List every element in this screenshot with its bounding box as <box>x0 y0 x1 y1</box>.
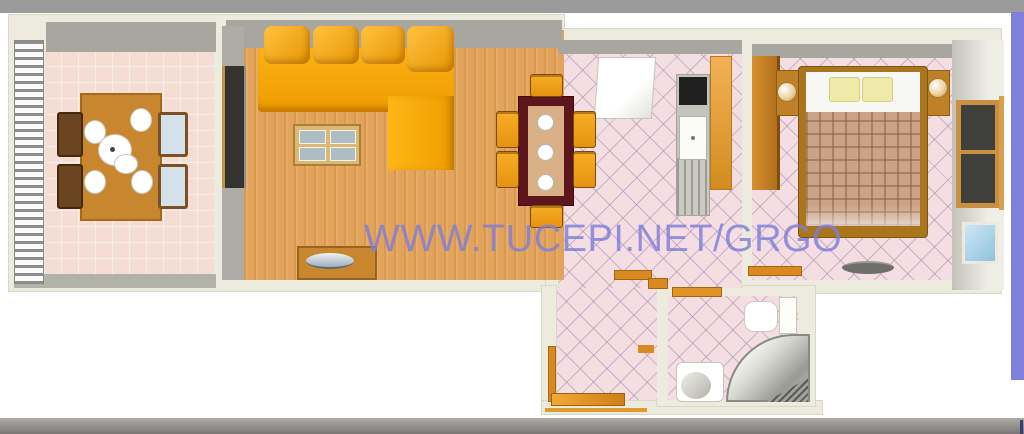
terrace-top-wall-face <box>46 22 216 52</box>
bedroom-window <box>956 100 1000 208</box>
sideboard-bowl-icon <box>306 253 354 269</box>
toilet <box>744 301 778 332</box>
dining-chair <box>496 111 519 148</box>
terrace-chair <box>57 164 83 209</box>
bowl-detail <box>110 147 115 152</box>
coffee-table-glass <box>330 130 356 144</box>
wall-cap <box>638 345 654 353</box>
sink-drain <box>691 136 695 140</box>
toilet-tank <box>779 297 797 334</box>
bottom-border-bar <box>0 418 1024 434</box>
pillow <box>829 77 860 102</box>
plate-icon <box>537 174 554 191</box>
entrance-door-sill <box>545 408 647 412</box>
coffee-table-glass <box>299 147 326 161</box>
plate-icon <box>131 170 153 194</box>
terrace-south-edge <box>14 274 216 288</box>
terrace-chair <box>158 112 188 157</box>
wall-cap <box>648 278 668 289</box>
kitchen-top-wall-face <box>558 40 742 54</box>
sofa-corner-cushion <box>407 26 454 72</box>
bedroom-window-crossbar <box>960 150 996 154</box>
plate-icon <box>537 114 554 131</box>
bedside-lamp-icon <box>777 82 797 102</box>
right-accent-bar <box>1011 12 1024 380</box>
small-blue-window <box>962 222 998 264</box>
top-border-bar <box>0 0 1024 13</box>
sofa-cushion <box>264 26 310 64</box>
sofa-cushion <box>361 26 405 64</box>
plate-icon <box>84 170 106 194</box>
sofa-cushion <box>313 26 359 64</box>
stove-cooktop <box>679 77 707 105</box>
dining-chair <box>573 151 596 188</box>
bedside-lamp-icon <box>928 78 948 98</box>
bedroom-top-wall-face <box>752 44 952 58</box>
watermark-text: WWW.TUCEPI.NET/GRGO <box>364 218 842 261</box>
floor-dish-icon <box>842 261 894 274</box>
wall-cap-ledge <box>614 270 652 280</box>
plate-icon <box>130 108 152 132</box>
kitchen-cabinet-fronts <box>677 158 709 215</box>
sofa-chaise <box>388 96 454 170</box>
fridge <box>594 57 656 119</box>
right-accent-notch <box>1020 420 1023 434</box>
terrace-door-glass <box>222 66 246 188</box>
pillow <box>862 77 893 102</box>
window-outer-frame <box>999 96 1004 210</box>
floorplan-scene: WWW.TUCEPI.NET/GRGO <box>0 0 1024 434</box>
terrace-chair <box>158 164 188 209</box>
terrace-chair <box>57 112 83 157</box>
kitchen-counter-wood-panel <box>710 56 732 190</box>
bathroom-door <box>672 287 722 297</box>
entrance-door <box>551 393 625 406</box>
dining-chair <box>573 111 596 148</box>
serving-bowl-icon <box>114 154 138 174</box>
hallway-floor <box>557 288 657 400</box>
coffee-table-glass <box>330 147 356 161</box>
coffee-table-glass <box>299 130 326 144</box>
dining-chair <box>496 151 519 188</box>
dining-chair <box>530 74 563 97</box>
washbasin-bowl <box>681 372 711 399</box>
terrace-railing <box>14 40 44 284</box>
bedroom-open-door <box>748 266 802 276</box>
plate-icon <box>537 144 554 161</box>
